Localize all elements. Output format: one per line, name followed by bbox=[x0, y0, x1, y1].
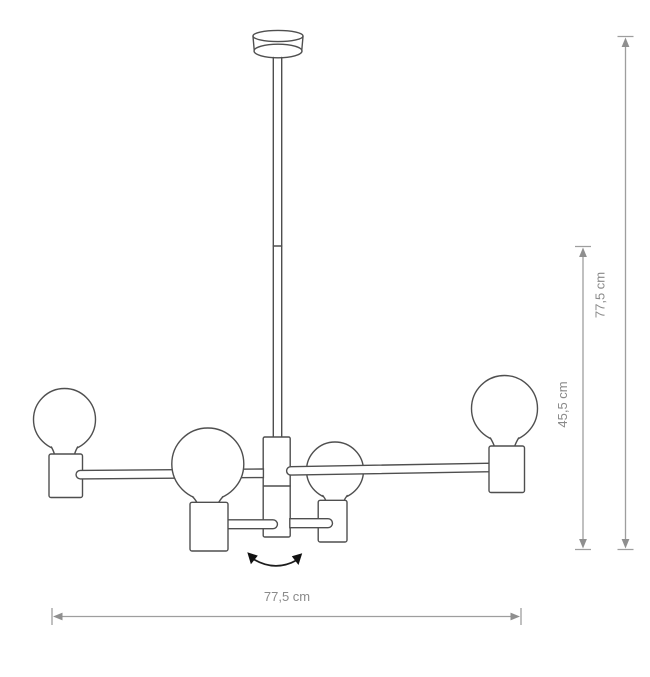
height-total-label: 77,5 cm bbox=[592, 272, 607, 318]
rotation-arrow-icon bbox=[247, 552, 302, 566]
socket-mid-left bbox=[190, 502, 228, 551]
ceiling-canopy bbox=[253, 30, 303, 57]
bulb-far-left bbox=[34, 389, 96, 455]
arm-lower-right bbox=[290, 519, 333, 528]
drawing-canvas: 77,5 cm 45,5 cm 77,5 cm bbox=[0, 0, 650, 677]
bulb-far-right bbox=[472, 376, 538, 447]
dimension-height-body: 45,5 cm bbox=[555, 247, 591, 550]
suspension-rod bbox=[273, 58, 281, 438]
width-total-label: 77,5 cm bbox=[264, 589, 310, 604]
bulb-mid-left bbox=[172, 428, 244, 503]
chandelier-dimension-drawing: 77,5 cm 45,5 cm 77,5 cm bbox=[0, 0, 650, 677]
height-body-label: 45,5 cm bbox=[555, 381, 570, 427]
socket-far-right bbox=[489, 446, 525, 493]
dimension-height-total: 77,5 cm bbox=[592, 37, 633, 550]
arm-lower-left bbox=[222, 520, 277, 529]
dimension-width-total: 77,5 cm bbox=[52, 589, 521, 625]
